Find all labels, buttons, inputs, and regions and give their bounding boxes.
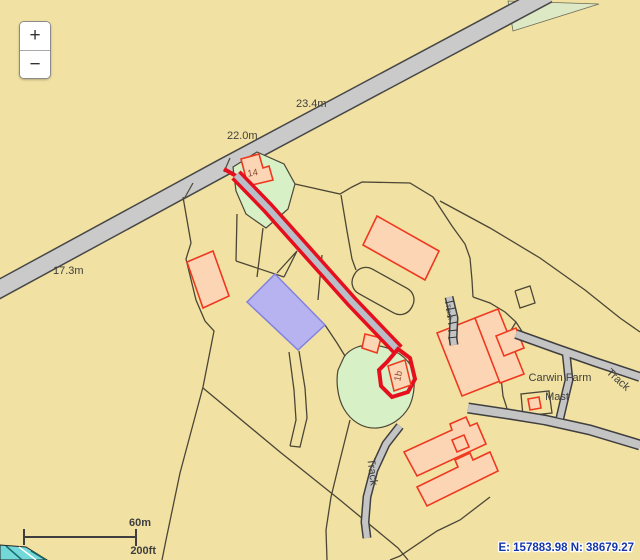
zoom-in-button[interactable]: + [20, 22, 50, 50]
scale-imperial-label: 200ft [130, 545, 156, 557]
mast-building [528, 397, 541, 410]
coordinate-readout: E: 157883.98 N: 38679.27 [498, 542, 634, 554]
mast-label: Mast [545, 391, 569, 403]
building-1b-label: 1b [392, 370, 405, 383]
contour-label-17: 17.3m [53, 265, 84, 277]
zoom-out-button[interactable]: − [20, 50, 50, 78]
map-application: 23.4m 22.0m 17.3m 14 1b Carwin Farm Mast… [0, 0, 640, 560]
map-canvas[interactable]: 23.4m 22.0m 17.3m 14 1b Carwin Farm Mast… [0, 0, 640, 560]
contour-label-22: 22.0m [227, 130, 258, 142]
contour-label-23: 23.4m [296, 98, 327, 110]
scale-metric-label: 60m [129, 517, 151, 529]
zoom-control: + − [19, 21, 51, 79]
building-14-label: 14 [247, 167, 259, 180]
farm-name-label: Carwin Farm [529, 372, 592, 384]
